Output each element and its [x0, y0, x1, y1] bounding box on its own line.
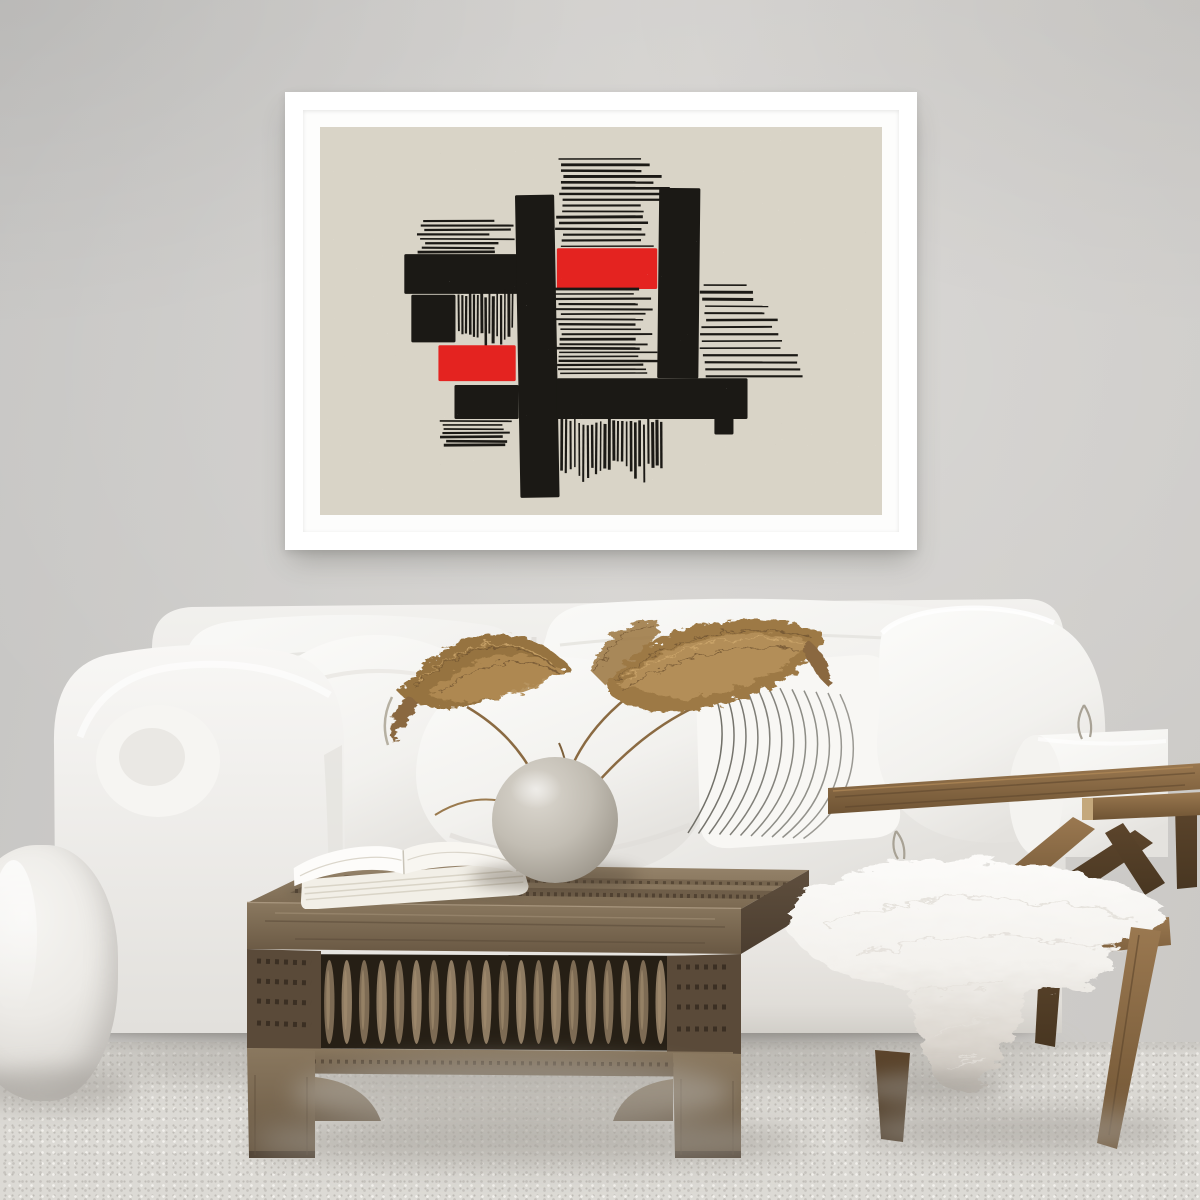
vase-highlight — [510, 769, 562, 809]
abstract-composition — [320, 127, 882, 515]
chair-shadow — [852, 1108, 1182, 1154]
paper-grain-overlay — [320, 127, 882, 515]
living-room-photo — [0, 0, 1200, 1200]
art-mat — [303, 110, 899, 532]
front-rail — [247, 903, 741, 954]
art-paper — [320, 127, 882, 515]
framed-art-print — [285, 92, 917, 550]
fur-shadow — [855, 1072, 1005, 1104]
arm-scroll-inner — [119, 728, 185, 786]
pouf-highlight — [0, 860, 37, 1014]
book-spine — [403, 850, 404, 874]
table-shadow — [250, 1118, 810, 1166]
sphere-vase — [492, 757, 618, 883]
